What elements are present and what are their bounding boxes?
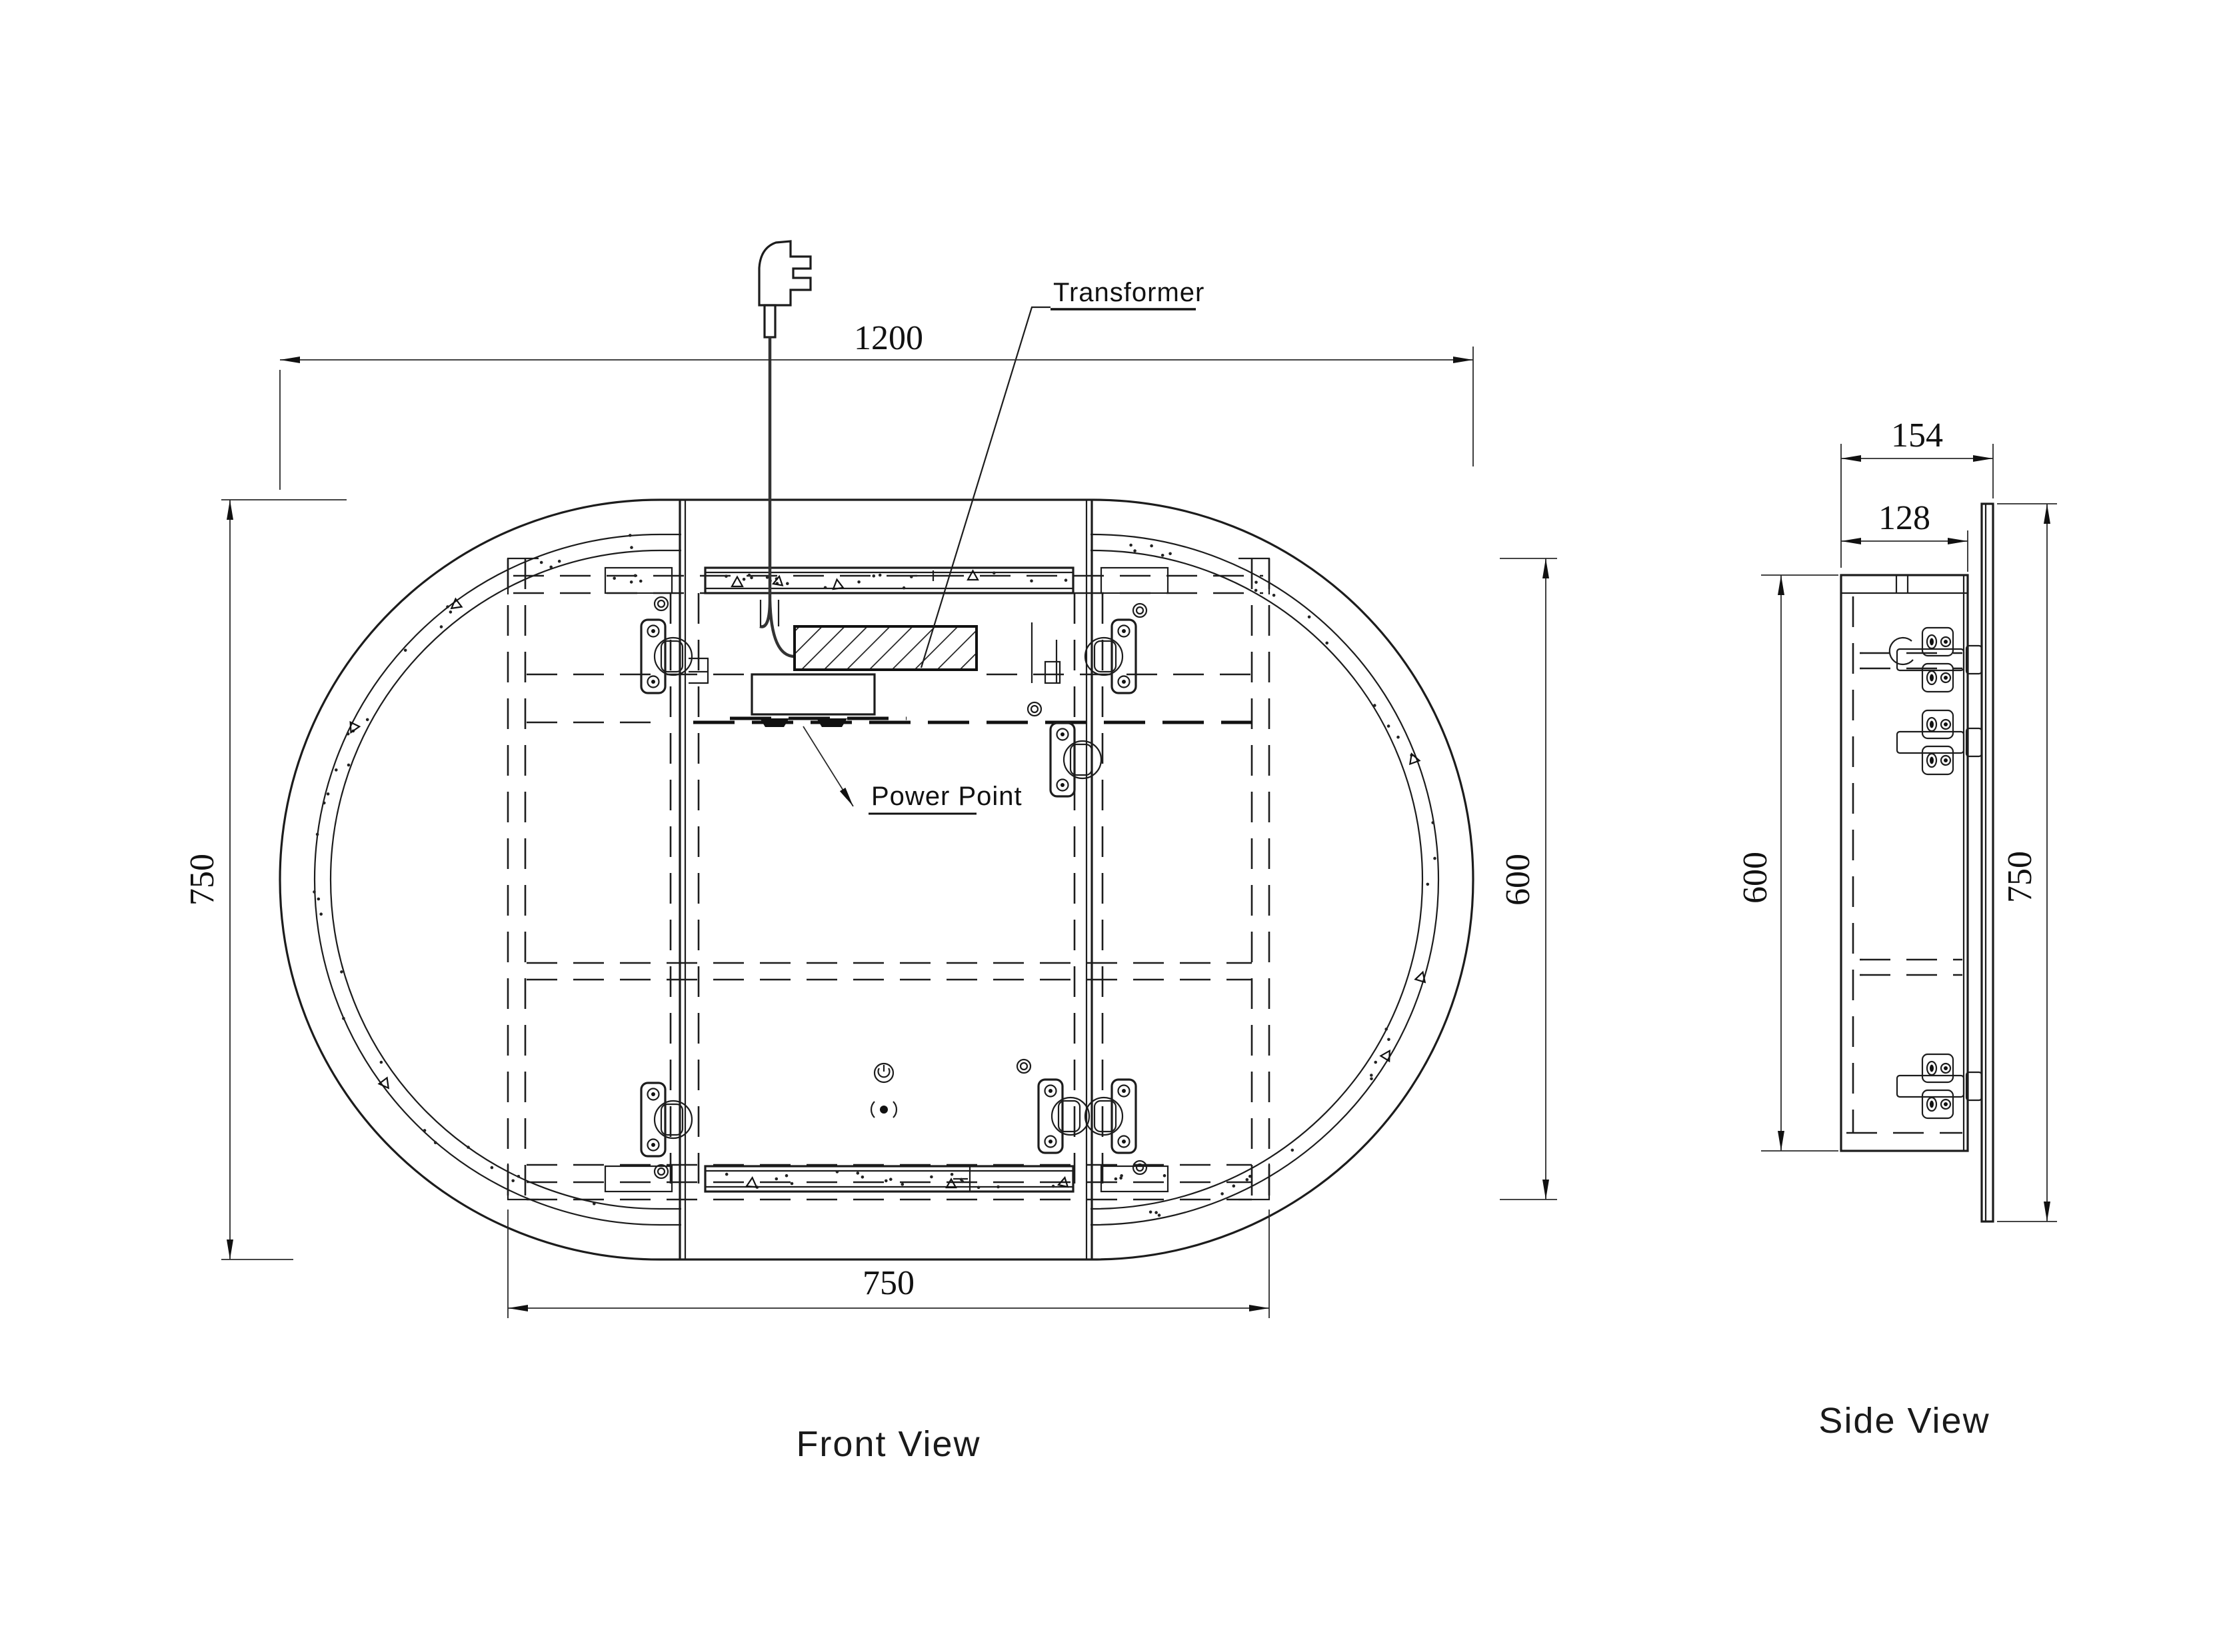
transformer-callout: Transformer [921, 278, 1204, 668]
dim-front-height: 750 [183, 500, 347, 1259]
drawing-canvas: Transformer Power Point 1200 750 600 [0, 0, 2213, 1652]
dim-text-750-left: 750 [183, 854, 221, 906]
hinge-icon [641, 597, 692, 693]
mirror-outline [280, 500, 1473, 1259]
transformer-box [795, 626, 977, 670]
power-switch-icon [875, 1064, 893, 1082]
hinge-icon [641, 1083, 692, 1178]
dim-text-128: 128 [1878, 499, 1930, 537]
led-strip-top-stubs [605, 568, 1168, 593]
dim-front-width: 1200 [280, 319, 1473, 490]
dim-side-mirror-height: 750 [1997, 504, 2057, 1222]
transformer-label: Transformer [1053, 278, 1204, 307]
technical-drawing: Transformer Power Point 1200 750 600 [0, 0, 2213, 1652]
front-view: Transformer Power Point 1200 750 600 [183, 241, 1557, 1464]
dim-text-600-side: 600 [1736, 852, 1774, 904]
dim-text-750-bottom: 750 [863, 1264, 915, 1302]
dim-side-cabinet-depth: 128 [1841, 499, 1968, 572]
power-point-callout: Power Point [803, 726, 1023, 814]
power-point-label: Power Point [871, 782, 1023, 811]
dim-text-1200: 1200 [854, 319, 923, 357]
dim-side-cabinet-height: 600 [1736, 575, 1838, 1151]
hinge-icon [1017, 1060, 1089, 1153]
front-view-caption: Front View [796, 1424, 981, 1464]
dim-text-600-front: 600 [1499, 854, 1537, 906]
side-view-caption: Side View [1818, 1401, 1990, 1441]
door-split-lines [680, 500, 1092, 1259]
side-mirror-panel [1982, 504, 1993, 1222]
led-strip-top [705, 568, 1073, 593]
hinge-icon [1085, 1080, 1146, 1174]
side-view: 154 128 600 750 Side View [1736, 416, 2057, 1441]
hinge-icon [1028, 702, 1101, 796]
hinge-icon [1085, 604, 1146, 693]
dim-side-depth: 154 [1841, 416, 1993, 568]
dim-text-750-side: 750 [2001, 851, 2039, 903]
power-cord [760, 337, 795, 656]
dim-text-154: 154 [1891, 416, 1943, 454]
hinge-side-icon [1897, 1054, 1982, 1118]
sensor-icon [871, 1102, 897, 1118]
hinges-front [641, 597, 1146, 1178]
hinge-side-icon [1897, 710, 1982, 774]
led-strip-bottom-stubs [605, 1166, 1168, 1192]
dim-front-inner-width: 750 [508, 1210, 1269, 1318]
power-point-box [730, 674, 907, 727]
dim-front-inner-height: 600 [1499, 558, 1557, 1200]
led-strip-bottom [705, 1166, 1073, 1192]
